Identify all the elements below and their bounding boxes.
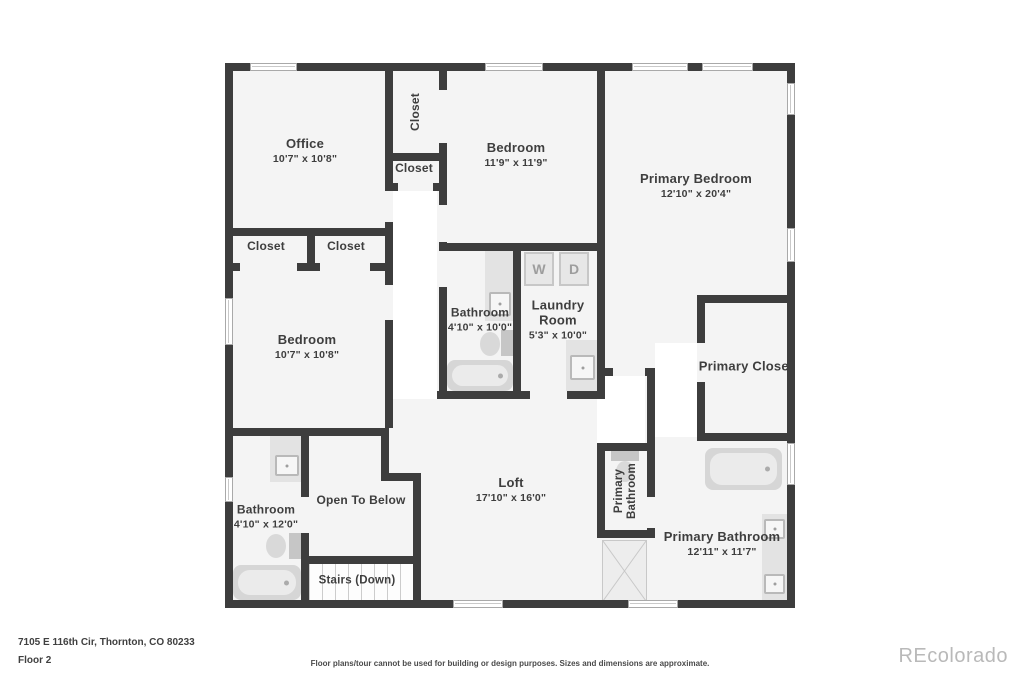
room-label-closet-hall: Closet (395, 162, 433, 176)
open-below-name: Open To Below (316, 494, 405, 508)
room-label-primary-closet: Primary Closet (699, 360, 794, 375)
room-label-stairs: Stairs (Down) (319, 574, 396, 587)
bathroom-bl-dims: 4'10" x 12'0" (234, 518, 298, 530)
stairs-name: Stairs (Down) (319, 574, 396, 587)
bathroom-mid-bathtub (447, 360, 513, 391)
window (250, 63, 297, 71)
wall (433, 183, 447, 191)
wall (787, 115, 795, 228)
closet-a-name: Closet (247, 240, 285, 254)
wall (439, 71, 447, 90)
window (628, 600, 678, 608)
bathroom-bl-bathtub (233, 565, 301, 600)
wall (385, 63, 393, 187)
loft-dims: 17'10" x 16'0" (476, 492, 546, 504)
window (225, 298, 233, 345)
wall (225, 428, 389, 436)
hallway (393, 191, 437, 399)
wall (370, 263, 393, 271)
wall (301, 436, 309, 497)
wall (688, 63, 702, 71)
window (787, 228, 795, 262)
property-address: 7105 E 116th Cir, Thornton, CO 80233 (18, 637, 195, 648)
wall (647, 452, 655, 497)
room-label-loft: Loft 17'10" x 16'0" (476, 476, 546, 504)
wall (597, 530, 655, 538)
bathroom-bl-toilet-bowl (266, 534, 286, 558)
floor-name: Floor 2 (18, 655, 51, 666)
laundry-dims: 5'3" x 10'0" (524, 329, 592, 341)
primary-shower (602, 540, 647, 602)
primary-bedroom-dims: 12'10" x 20'4" (640, 188, 752, 200)
window (787, 83, 795, 115)
wall (225, 263, 240, 271)
room-label-bathroom-bl: Bathroom 4'10" x 12'0" (234, 504, 298, 531)
primary-bathtub (705, 448, 782, 490)
primary-bathroom-name: Primary Bathroom (664, 530, 781, 545)
office-name: Office (273, 137, 337, 152)
primary-bath-wc-name: Primary Bathroom (613, 458, 639, 524)
primary-closet-name: Primary Closet (699, 360, 794, 375)
wall (301, 556, 421, 564)
room-label-closet-a: Closet (247, 240, 285, 254)
room-label-bathroom-mid: Bathroom 4'10" x 10'0" (448, 307, 512, 334)
bedroom-top-dims: 11'9" x 11'9" (484, 157, 547, 169)
loft-name: Loft (476, 476, 546, 491)
room-label-closet-top: Closet (409, 93, 423, 131)
wall (301, 533, 309, 608)
bedroom-top-name: Bedroom (484, 141, 547, 156)
window (702, 63, 753, 71)
closet-b-name: Closet (327, 240, 365, 254)
wall (678, 600, 795, 608)
wall (297, 263, 320, 271)
wall (503, 600, 628, 608)
wall (437, 391, 530, 399)
wall (787, 485, 795, 608)
bathroom-bl-sink (275, 455, 299, 476)
wall (605, 368, 613, 376)
corridor-primary-entry (605, 376, 645, 443)
room-label-open-below: Open To Below (316, 494, 405, 508)
bathroom-bl-name: Bathroom (234, 504, 298, 518)
dryer-box: D (559, 252, 589, 286)
wall (439, 243, 605, 251)
window (485, 63, 543, 71)
bathroom-mid-toilet-tank (501, 330, 513, 356)
window (787, 443, 795, 485)
corridor-stub (597, 399, 605, 443)
bedroom-left-dims: 10'7" x 10'8" (275, 349, 339, 361)
wall (787, 262, 795, 443)
bathroom-mid-name: Bathroom (448, 307, 512, 321)
room-label-laundry: Laundry Room 5'3" x 10'0" (524, 299, 592, 342)
room-label-bedroom-top: Bedroom 11'9" x 11'9" (484, 141, 547, 169)
wall (385, 153, 447, 161)
closet-top-name: Closet (409, 93, 423, 131)
wall (385, 183, 398, 191)
bedroom-left-name: Bedroom (275, 333, 339, 348)
wall (225, 345, 233, 477)
room-label-closet-b: Closet (327, 240, 365, 254)
wall (787, 63, 795, 83)
wall (385, 320, 393, 428)
window (632, 63, 688, 71)
wall (543, 63, 632, 71)
office-dims: 10'7" x 10'8" (273, 153, 337, 165)
recolorado-watermark: REcolorado (898, 645, 1008, 668)
corridor-primary-suite (655, 343, 697, 437)
room-label-primary-bath-wc: Primary Bathroom (613, 458, 639, 524)
room-label-primary-bathroom: Primary Bathroom 12'11" x 11'7" (664, 530, 781, 558)
wall (647, 376, 655, 452)
window (225, 477, 233, 502)
disclaimer-text: Floor plans/tour cannot be used for buil… (311, 659, 710, 668)
window (453, 600, 503, 608)
room-label-bedroom-left: Bedroom 10'7" x 10'8" (275, 333, 339, 361)
shower-x-icon (603, 541, 646, 601)
wall (513, 243, 521, 399)
bathroom-bl-toilet-tank (289, 533, 301, 559)
wall (413, 473, 421, 608)
primary-bathroom-dims: 12'11" x 11'7" (664, 546, 781, 558)
wall (597, 443, 655, 451)
laundry-name: Laundry Room (524, 299, 592, 329)
room-label-primary-bedroom: Primary Bedroom 12'10" x 20'4" (640, 172, 752, 200)
bathroom-mid-toilet-bowl (480, 332, 500, 356)
closet-hall-name: Closet (395, 162, 433, 176)
wall (697, 295, 795, 303)
wall (697, 433, 795, 441)
washer-box: W (524, 252, 554, 286)
wall (439, 287, 447, 399)
washer-letter: W (532, 261, 545, 277)
primary-bedroom-name: Primary Bedroom (640, 172, 752, 187)
primary-bath-sink-2 (764, 574, 785, 594)
dryer-letter: D (569, 261, 579, 277)
wall (597, 443, 605, 538)
wall (645, 368, 655, 376)
floor-plan: W D (0, 0, 1020, 680)
room-label-office: Office 10'7" x 10'8" (273, 137, 337, 165)
laundry-sink (570, 355, 595, 380)
wall (225, 502, 233, 608)
bathroom-mid-dims: 4'10" x 10'0" (448, 321, 512, 333)
wall (597, 63, 605, 399)
